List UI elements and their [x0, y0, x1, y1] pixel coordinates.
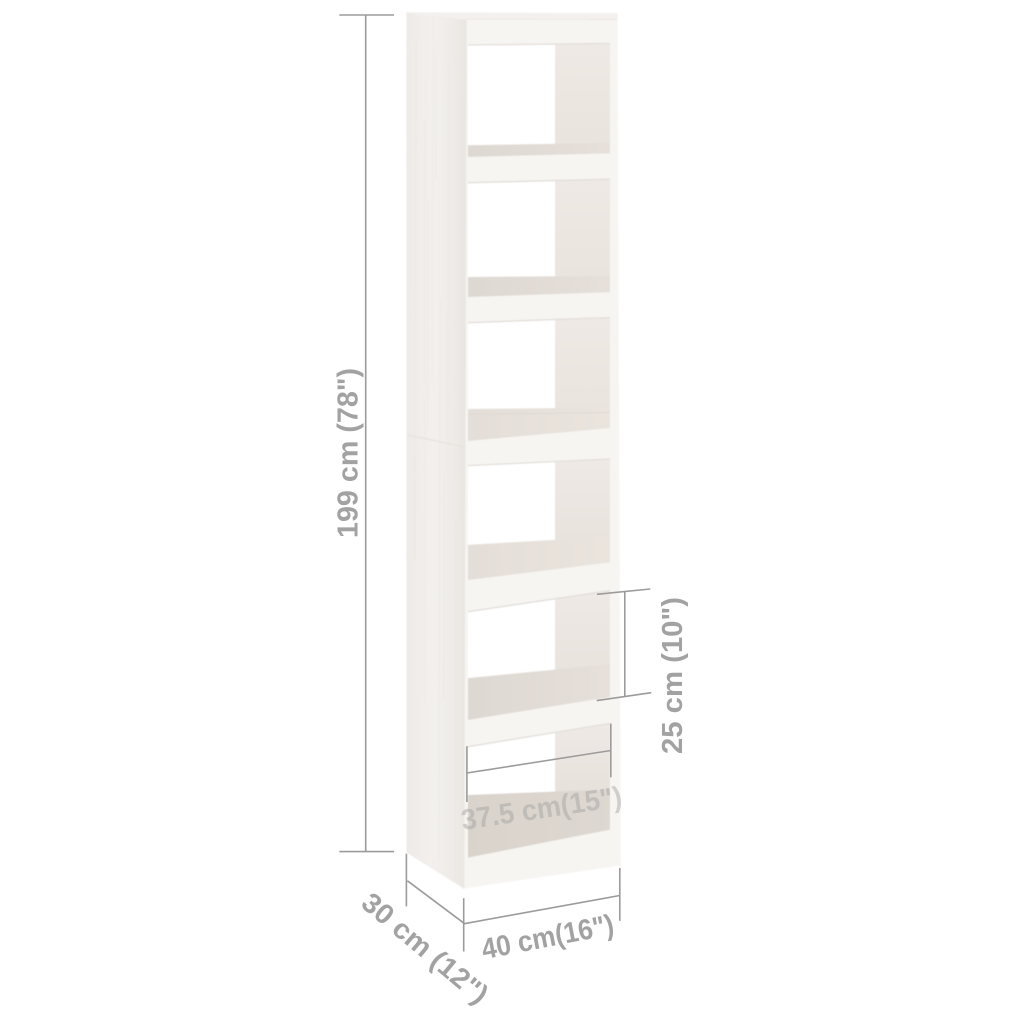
- svg-text:25 cm (10"): 25 cm (10"): [657, 597, 689, 754]
- svg-text:199 cm (78"): 199 cm (78"): [333, 368, 365, 538]
